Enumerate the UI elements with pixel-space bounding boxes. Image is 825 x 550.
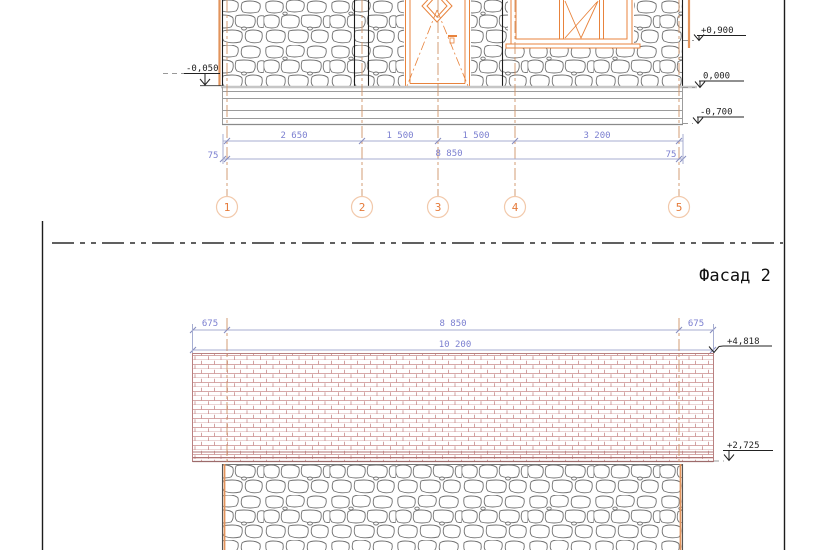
dim-label: 8 850 bbox=[439, 319, 466, 329]
level-value: +2,725 bbox=[727, 441, 760, 451]
dim-label: 1 500 bbox=[386, 131, 413, 141]
dimension-row-span: 675 8 850 675 bbox=[190, 319, 716, 333]
axis-bubbles: 1 2 3 4 5 bbox=[217, 197, 690, 218]
facade2-group: 675 8 850 675 10 200 +4,818 bbox=[190, 318, 773, 550]
dim-total-label: 8 850 bbox=[435, 149, 462, 159]
dim-label: 675 bbox=[202, 319, 218, 329]
axis-number: 2 bbox=[359, 201, 366, 214]
dim-label: 2 650 bbox=[280, 131, 307, 141]
stone-wall-lower bbox=[222, 464, 683, 550]
level-marker-left: -0,050 bbox=[163, 64, 220, 85]
window-sill bbox=[506, 44, 640, 48]
dim-side-label: 75 bbox=[208, 151, 219, 161]
level-marker-sill: +0,900 bbox=[683, 26, 746, 41]
drawing-sheet: 2 650 1 500 1 500 3 200 8 850 75 75 1 2 … bbox=[0, 0, 825, 550]
facade-drawing-canvas: 2 650 1 500 1 500 3 200 8 850 75 75 1 2 … bbox=[0, 0, 825, 550]
axis-number: 1 bbox=[224, 201, 231, 214]
facade1-group: 2 650 1 500 1 500 3 200 8 850 75 75 1 2 … bbox=[163, 0, 746, 218]
axis-number: 5 bbox=[676, 201, 683, 214]
level-marker-roof-top: +4,818 bbox=[709, 337, 772, 353]
dim-total-label: 10 200 bbox=[439, 340, 472, 350]
axis-number: 3 bbox=[435, 201, 442, 214]
dim-label: 3 200 bbox=[583, 131, 610, 141]
level-value: +4,818 bbox=[727, 337, 760, 347]
level-value: -0,050 bbox=[186, 64, 219, 74]
door-opening bbox=[404, 0, 471, 88]
plinth-band bbox=[222, 87, 683, 125]
dimension-row-segments: 2 650 1 500 1 500 3 200 bbox=[223, 131, 683, 144]
window-opening bbox=[508, 0, 634, 44]
roof-hatch bbox=[193, 354, 714, 462]
axis-number: 4 bbox=[512, 201, 519, 214]
level-value: +0,900 bbox=[701, 26, 734, 36]
dim-label: 675 bbox=[688, 319, 704, 329]
level-value: 0,000 bbox=[703, 72, 730, 82]
drawing-title: Фасад 2 bbox=[699, 266, 771, 286]
level-value: -0,700 bbox=[700, 108, 733, 118]
dim-side-label: 75 bbox=[666, 150, 677, 160]
dimension-row-total: 8 850 75 75 bbox=[208, 134, 686, 164]
level-marker-zero: 0,000 bbox=[683, 72, 744, 88]
dim-label: 1 500 bbox=[462, 131, 489, 141]
level-marker-eaves: +2,725 bbox=[714, 441, 773, 461]
level-marker-base: -0,700 bbox=[683, 108, 744, 124]
